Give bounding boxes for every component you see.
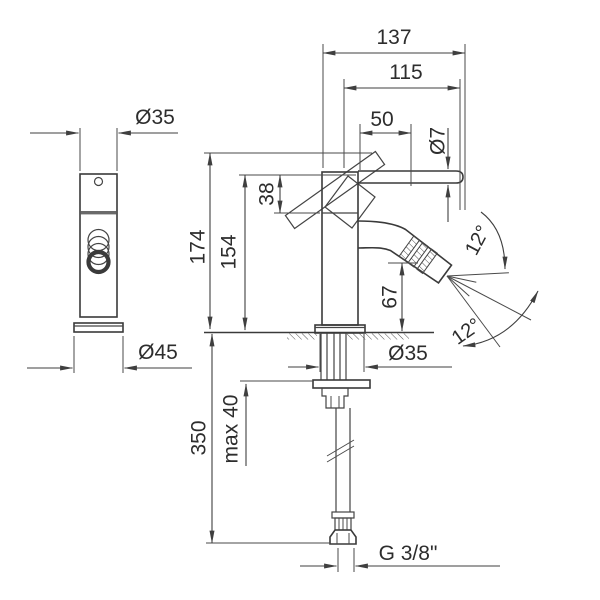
shank-diameter-label: Ø35 [388,342,428,365]
handle-projection-label: 115 [389,61,422,84]
dim-hose-thread: G 3/8" [300,542,500,572]
side-body [322,172,358,325]
front-base-flange [74,323,123,332]
front-handle-pin [95,178,103,186]
dim-rod-diameter: Ø7 [426,127,449,222]
clamp-nut [322,388,348,408]
body-diameter-front-label: Ø35 [135,106,175,129]
dim-body-diameter-front: Ø35 [30,106,178,171]
spray-angle-upper-label: 12° [461,222,495,259]
front-body [80,174,117,317]
hose-nut [330,530,356,544]
clamp-washer [313,380,370,388]
dim-base-diameter: Ø45 [27,336,192,373]
dim-handle-grip: 50 [360,108,411,186]
total-projection-label: 137 [376,26,411,49]
base-diameter-label: Ø45 [138,341,178,364]
dim-shank-diameter: Ø35 [288,334,452,372]
hose-thread-label: G 3/8" [379,542,438,565]
side-view: 12° 12° [204,152,538,545]
hose-collar [332,512,354,518]
shank-assembly [313,333,370,544]
dim-handle-drop: 38 [255,175,320,213]
spout-height-label: 67 [378,285,401,308]
front-view: Ø35 Ø45 [27,106,192,373]
dim-max-counter-thickness: max 40 [219,381,313,466]
dimensions: 137 115 50 Ø7 174 [186,26,500,572]
handle-grip-label: 50 [370,108,393,131]
rod-diameter-label: Ø7 [426,127,449,155]
handle-drop-label: 38 [255,182,278,205]
body-height-label: 154 [217,234,240,269]
lever-phantom-raised [285,152,384,229]
max-counter-thickness-label: max 40 [219,395,242,464]
dim-total-height: 174 [186,153,372,329]
dim-spout-height: 67 [378,263,418,331]
dim-hose-length: 350 [187,334,330,543]
front-lever-end [88,230,109,273]
total-height-label: 174 [186,229,209,264]
front-body-seam [81,211,117,214]
technical-drawing-page: Ø35 Ø45 [0,0,600,600]
bidet-mixer-dimension-drawing: Ø35 Ø45 [0,0,600,600]
dim-body-height: 154 [217,175,356,330]
hose-length-label: 350 [187,420,210,455]
spout-aerator: 12° 12° [358,212,538,350]
